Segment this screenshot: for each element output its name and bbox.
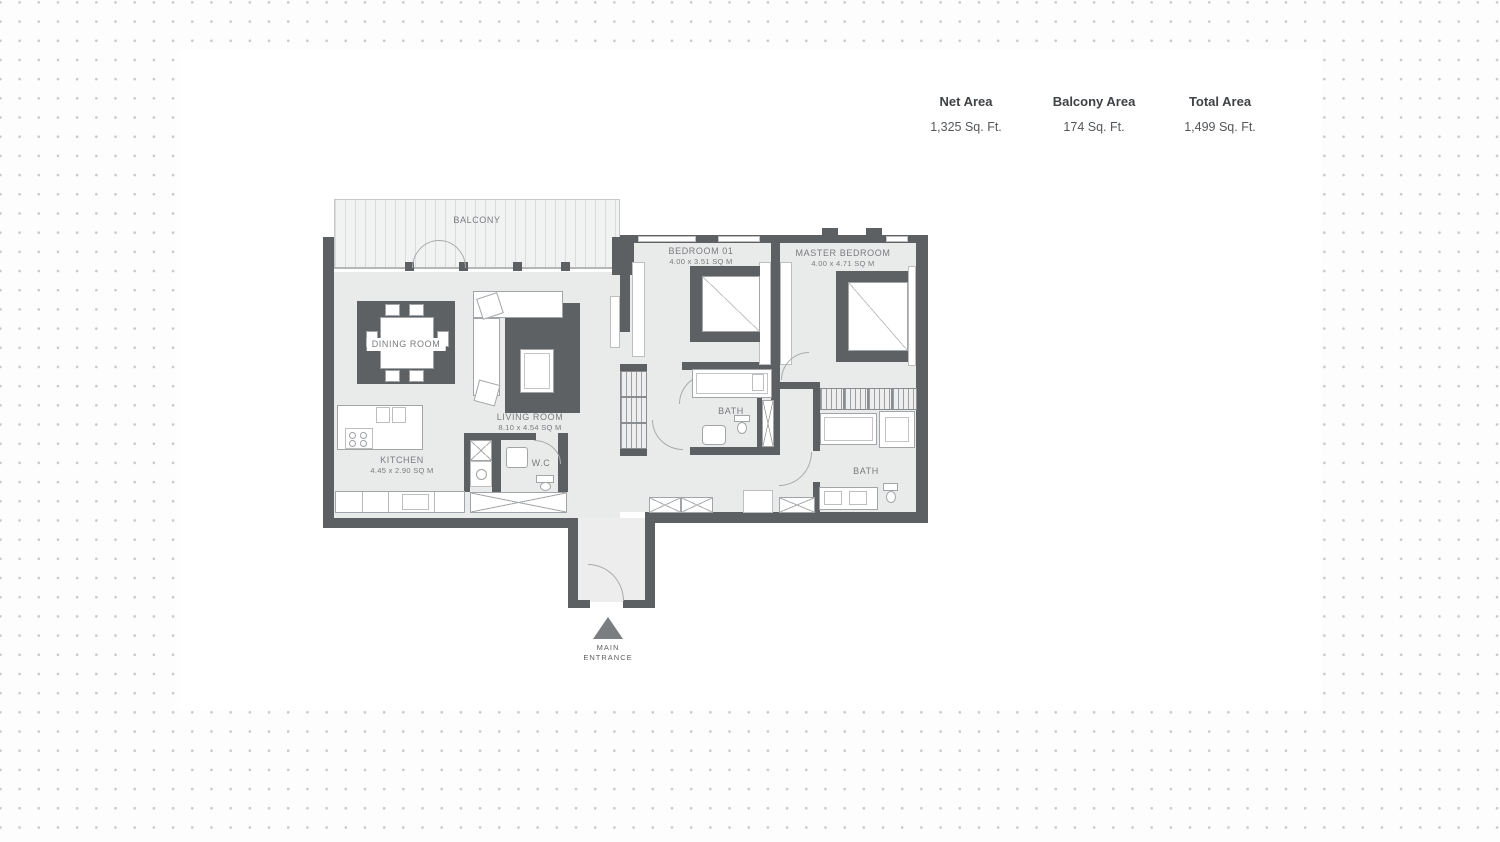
shelf-strip-bedroom01 <box>632 262 645 357</box>
master-toilet-bowl <box>886 491 896 503</box>
washing-machine-door <box>476 469 487 480</box>
wall-bottom-right <box>645 512 928 523</box>
kitchen-dims: 4.45 x 2.90 SQ M <box>370 467 433 475</box>
master-bedside-strip <box>908 266 916 366</box>
wall-corridor-bottom-a <box>573 600 590 608</box>
washing-machine <box>470 461 492 487</box>
coffee-table-inner <box>524 353 550 389</box>
wall-bath1-south <box>690 447 771 455</box>
wall-corridor-bottom-b <box>623 600 655 608</box>
wall-bedroom-divider <box>771 243 780 367</box>
living-room-dims: 8.10 x 4.54 SQ M <box>498 424 561 432</box>
wall-bottom-left <box>323 518 578 528</box>
hall-closet-cell <box>620 423 647 449</box>
master-bedroom-label: MASTER BEDROOM <box>796 249 891 258</box>
bath1-faucet <box>752 374 764 391</box>
wall-corridor-left <box>568 518 578 608</box>
dining-chair <box>409 370 424 382</box>
master-bed-mattress <box>848 282 908 351</box>
kitchen-hob <box>345 428 373 449</box>
window-bedroom01-b <box>718 236 760 242</box>
bath1-toilet-tank <box>734 415 750 422</box>
dining-room-label: DINING ROOM <box>367 338 446 351</box>
net-area-value: 1,325 Sq. Ft. <box>930 120 1002 134</box>
wall-wc-north-b <box>558 433 568 440</box>
balcony-sill-line <box>334 267 620 269</box>
net-area-label: Net Area <box>940 94 993 109</box>
balcony-area-label: Balcony Area <box>1053 94 1136 109</box>
balcony <box>334 199 620 268</box>
bed01-mattress <box>702 276 760 332</box>
bath1-toilet-bowl <box>737 422 747 434</box>
master-wardrobe-cell <box>868 388 892 410</box>
hob-burner <box>360 440 367 447</box>
balcony-label: BALCONY <box>453 216 500 225</box>
wc-toilet-bowl <box>540 482 551 491</box>
hall-storage-xbox <box>649 497 681 513</box>
kitchen-counter-lower <box>335 491 465 513</box>
floorplan-page: Net Area 1,325 Sq. Ft. Balcony Area 174 … <box>0 0 1500 842</box>
hob-burner <box>349 440 356 447</box>
door-jamb <box>561 262 570 271</box>
master-tub <box>820 413 877 445</box>
wall-living-right <box>620 270 630 332</box>
wall-closet-top <box>620 364 647 371</box>
wall-wc-mid <box>492 440 501 492</box>
hob-burner <box>360 432 367 439</box>
vanity-basin <box>824 491 842 505</box>
total-area-label: Total Area <box>1189 94 1251 109</box>
wall-right <box>916 237 928 523</box>
living-room-label: LIVING ROOM <box>497 413 564 422</box>
master-wardrobe-cell <box>844 388 868 410</box>
curtain-strip-living <box>610 296 620 348</box>
master-vanity <box>819 487 878 510</box>
master-wardrobe-cell <box>892 388 917 410</box>
master-bedroom-dims: 4.00 x 4.71 SQ M <box>811 260 874 268</box>
counter-divider <box>362 492 363 512</box>
hall-storage-xbox <box>779 497 815 513</box>
wall-corridor-right <box>645 512 655 608</box>
wc-label: W.C <box>532 459 551 468</box>
wall-masterbath-west-a <box>813 389 820 451</box>
wc-sink <box>506 447 528 468</box>
vanity-basin <box>849 491 867 505</box>
master-shower <box>879 411 915 448</box>
counter-divider <box>388 492 389 512</box>
window-bedroom01-a <box>638 236 696 242</box>
wall-masterbath-north <box>780 382 820 389</box>
dining-chair <box>409 304 424 316</box>
wall-stub-b <box>866 228 882 236</box>
hall-storage-cabinet <box>743 490 773 513</box>
window-master <box>886 236 908 242</box>
wardrobe-strip-bedroom01 <box>759 262 771 365</box>
bath1-shower <box>762 400 774 447</box>
kitchen-label: KITCHEN <box>380 456 424 465</box>
entrance-label-line1: MAIN <box>597 644 620 652</box>
kitchen-appliance <box>376 407 390 423</box>
coffee-table <box>520 349 554 393</box>
master-toilet-tank <box>883 483 898 491</box>
bath1-sink <box>702 425 726 445</box>
master-shower-inner <box>885 417 909 442</box>
hall-storage-xbox <box>681 497 713 513</box>
door-jamb <box>513 262 522 271</box>
counter-divider <box>434 492 435 512</box>
kitchen-appliance <box>392 407 406 423</box>
master-wardrobe-cell <box>820 388 844 410</box>
hall-closet-cell <box>620 397 647 423</box>
balcony-area-value: 174 Sq. Ft. <box>1063 120 1124 134</box>
total-area-value: 1,499 Sq. Ft. <box>1184 120 1256 134</box>
entrance-arrow-icon <box>593 617 623 639</box>
bedroom01-label: BEDROOM 01 <box>668 247 733 256</box>
wall-wc-north-a <box>464 433 536 440</box>
wardrobe-strip-master <box>780 262 792 365</box>
bath1-label: BATH <box>718 407 744 416</box>
bedroom01-dims: 4.00 x 3.51 SQ M <box>669 258 732 266</box>
entrance-label-line2: ENTRANCE <box>583 654 632 662</box>
wall-stub-a <box>822 228 838 236</box>
washer-unit <box>470 440 492 461</box>
kitchen-sink <box>402 494 429 510</box>
dining-chair <box>385 370 400 382</box>
dining-chair <box>385 304 400 316</box>
master-tub-inner <box>824 417 873 441</box>
wall-wc-east <box>558 440 568 492</box>
hall-closet-cell <box>620 371 647 397</box>
wall-closet-bottom <box>620 449 647 456</box>
storage-closet <box>470 492 567 513</box>
hob-burner <box>349 432 356 439</box>
master-bath-label: BATH <box>853 467 879 476</box>
wall-left <box>323 237 334 528</box>
